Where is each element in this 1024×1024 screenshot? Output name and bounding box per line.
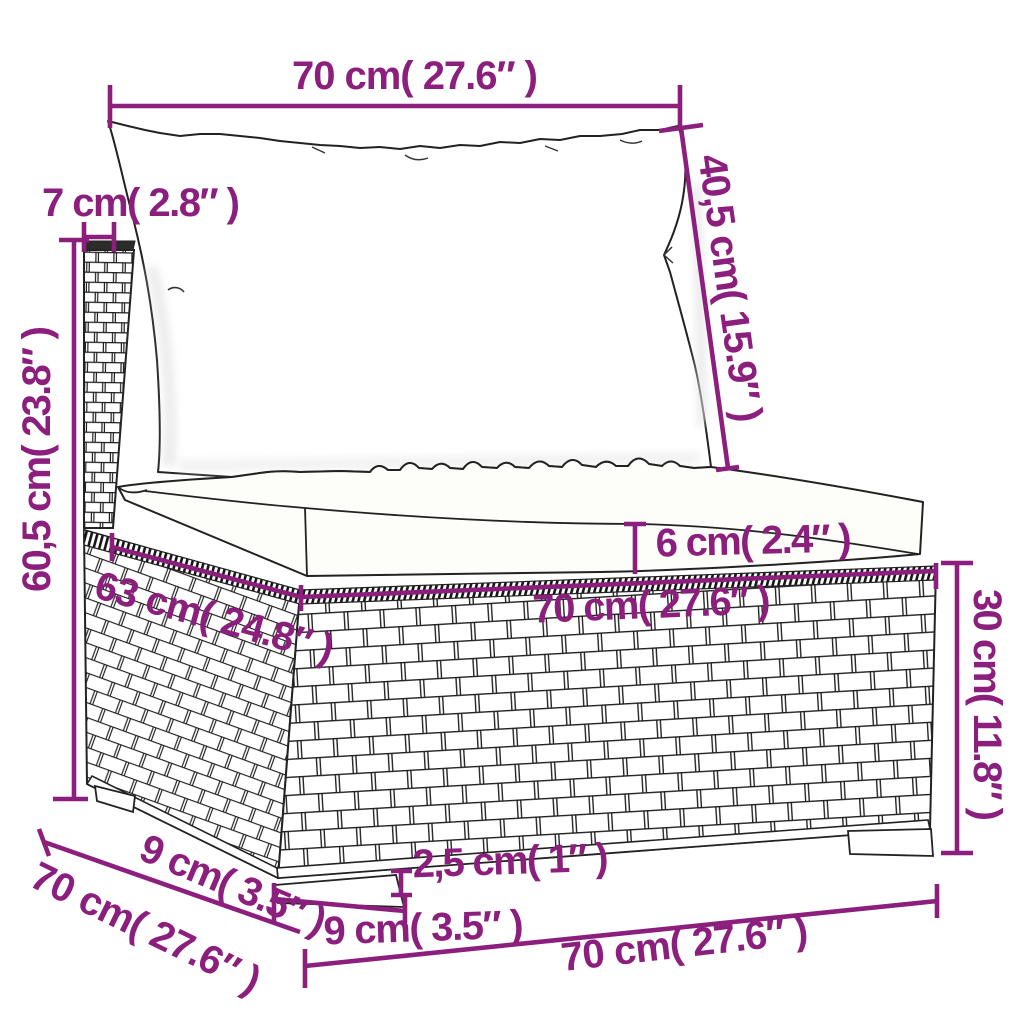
svg-text:30 cm( 11.8″ ): 30 cm( 11.8″ ) <box>965 589 1009 821</box>
svg-text:7 cm( 2.8″ ): 7 cm( 2.8″ ) <box>42 181 240 225</box>
svg-text:9 cm( 3.5″ ): 9 cm( 3.5″ ) <box>323 903 524 954</box>
svg-text:6 cm( 2.4″ ): 6 cm( 2.4″ ) <box>655 516 852 565</box>
svg-text:2,5 cm( 1″ ): 2,5 cm( 1″ ) <box>412 836 609 887</box>
svg-text:70 cm( 27.6″ ): 70 cm( 27.6″ ) <box>292 54 538 98</box>
svg-text:60,5 cm( 23.8″ ): 60,5 cm( 23.8″ ) <box>15 326 59 592</box>
